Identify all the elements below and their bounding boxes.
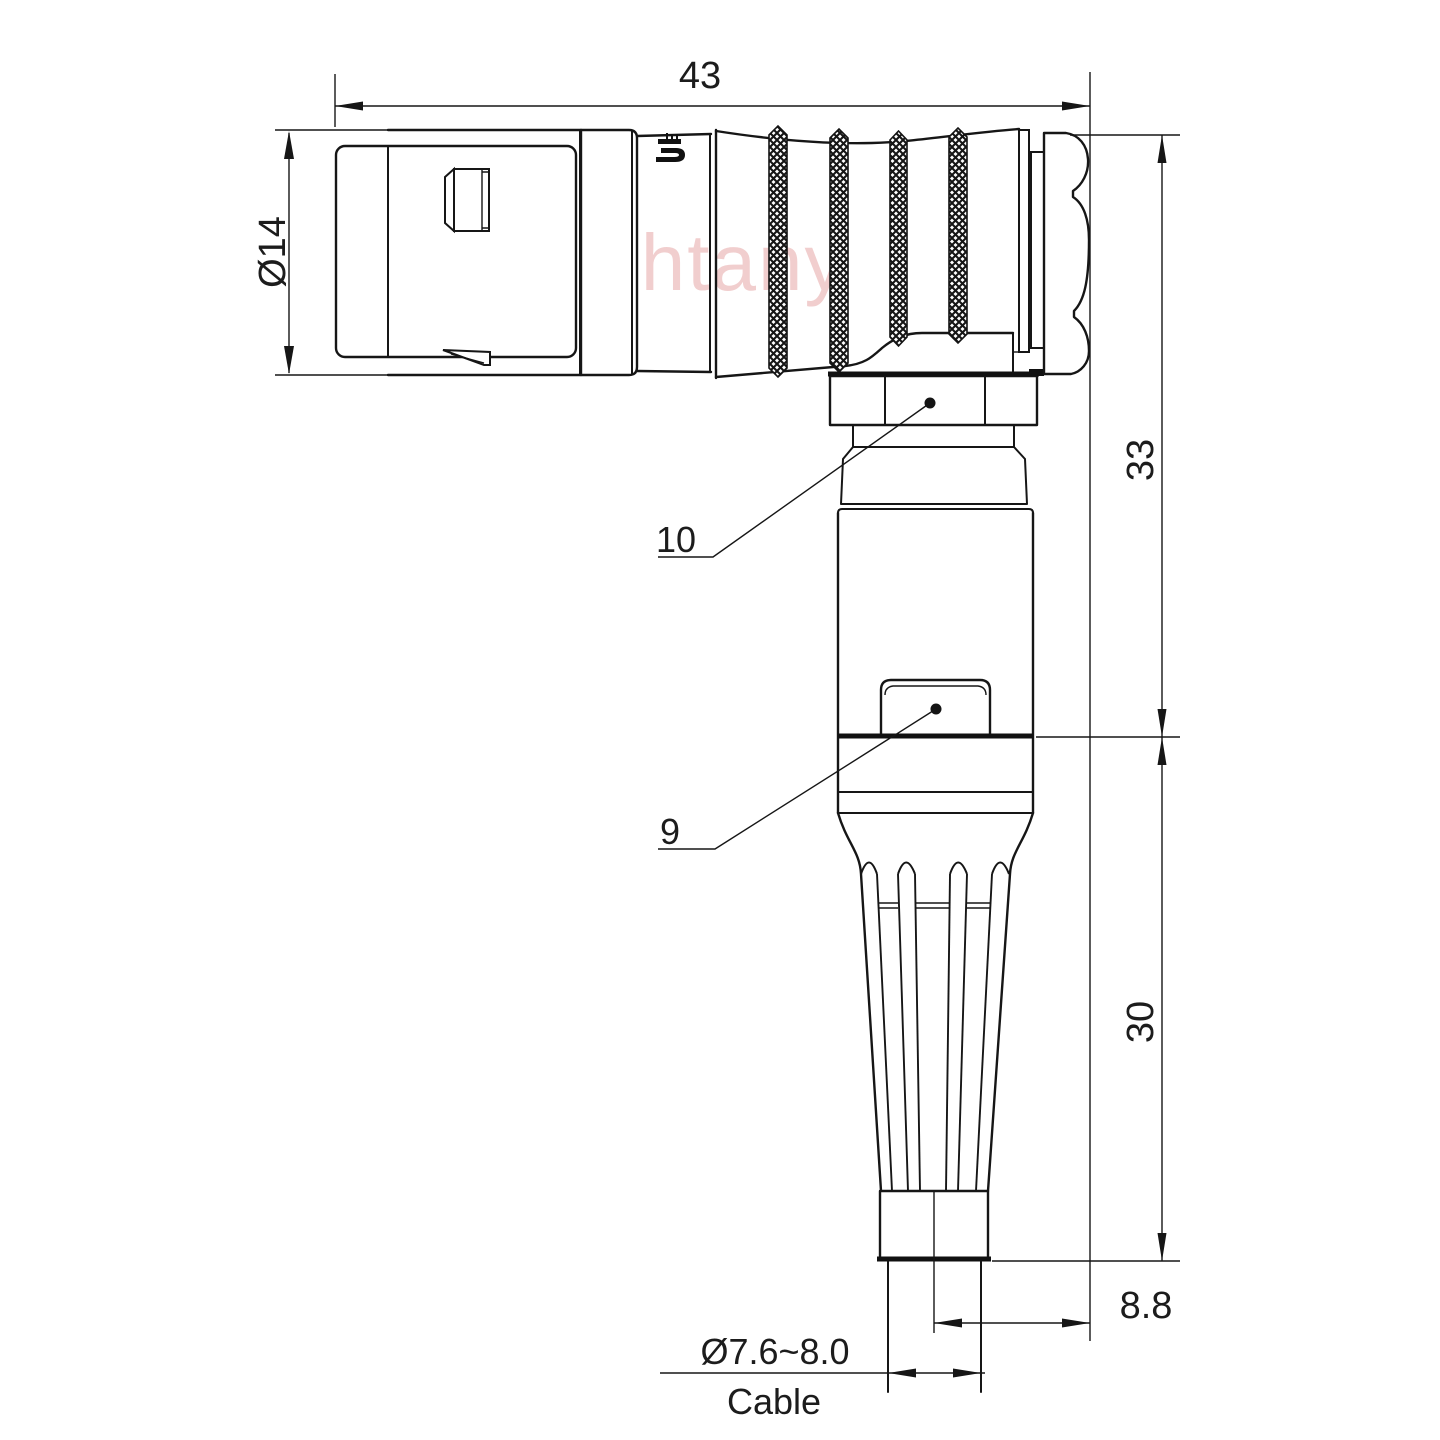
rear-cap-stack	[1013, 130, 1089, 376]
strain-relief-boot	[838, 813, 1033, 1191]
dim-label-dia14: Ø14	[252, 216, 294, 288]
connector-technical-drawing: Lightany	[0, 0, 1440, 1440]
technical-drawing-page: Lightany	[0, 0, 1440, 1440]
dim-label-33: 33	[1120, 439, 1162, 481]
cable-caption: Cable	[727, 1381, 821, 1422]
polarizing-key	[445, 169, 489, 231]
callout-label-9: 9	[660, 811, 680, 852]
callout-label-10: 10	[656, 519, 696, 560]
dim-label-cable-dia: Ø7.6~8.0	[700, 1331, 849, 1372]
barrel-body	[838, 513, 1033, 813]
dimension-front-diameter: Ø14	[252, 131, 294, 374]
front-shell	[275, 130, 581, 375]
dimension-boot-height: 30	[992, 737, 1180, 1261]
boot-rib-tops	[861, 863, 1009, 875]
dim-label-8-8: 8.8	[1120, 1285, 1173, 1327]
lobed-end-nut	[1044, 133, 1089, 374]
dimension-cable-diameter: Ø7.6~8.0 Cable	[660, 1331, 985, 1422]
boot-tie-bars	[879, 903, 990, 908]
dim-label-43: 43	[679, 55, 721, 97]
brand-logo-mark	[656, 133, 685, 162]
neck-and-flare	[838, 425, 1033, 513]
flange-collar	[581, 130, 637, 375]
dim-label-30: 30	[1120, 1001, 1162, 1043]
